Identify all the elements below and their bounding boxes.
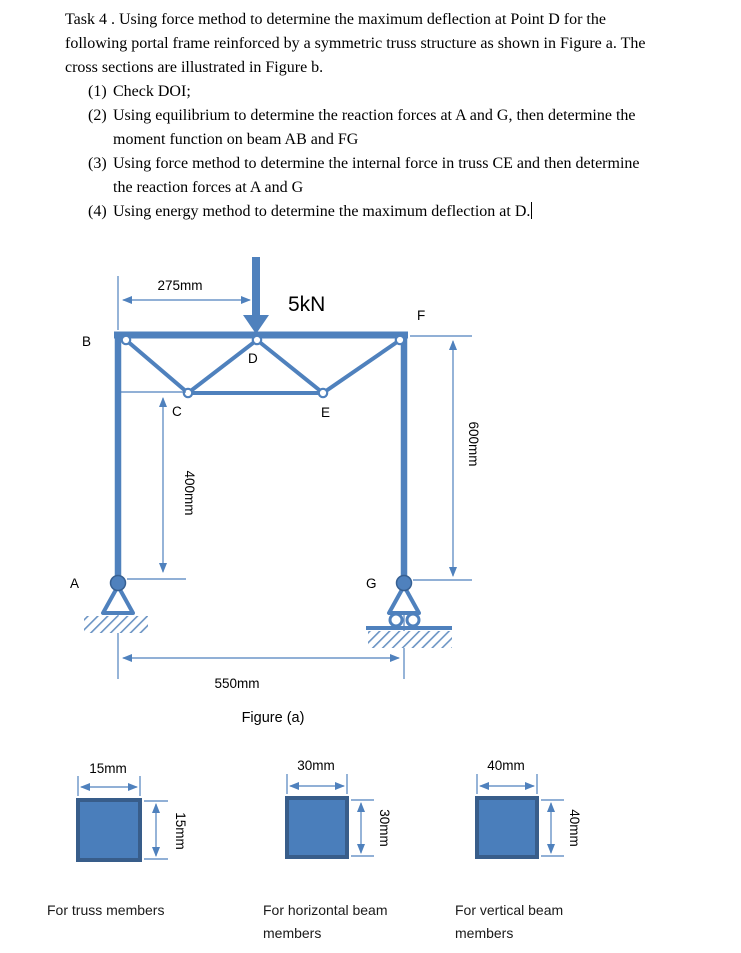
load-label: 5kN: [288, 293, 325, 316]
roller-wheel-left: [390, 614, 402, 626]
cross-section-vertical-beam: 40mm 40mm: [477, 758, 582, 857]
dimension-275: 275mm: [118, 276, 250, 330]
list-item-2-text-line-2: moment function on beam AB and FG: [113, 128, 708, 152]
truss-members: [126, 340, 400, 393]
task-line-1: Task 4 . Using force method to determine…: [65, 8, 715, 32]
truss-member-b-c: [126, 340, 188, 393]
node-label-a: A: [70, 576, 79, 591]
truss-member-c-d: [188, 340, 257, 393]
roller-support-g: [366, 576, 452, 649]
node-label-b: B: [82, 334, 91, 349]
cross-section-horizontal-beam: 30mm 30mm: [287, 758, 392, 857]
figure-a-caption: Figure (a): [242, 710, 305, 726]
text-cursor: [531, 202, 532, 219]
section-3-square: [477, 798, 537, 857]
figure-b-cross-sections-diagram: 15mm 15mm 30mm 30mm 40mm 40mm: [40, 752, 600, 870]
truss-member-d-e: [257, 340, 323, 393]
truss-member-e-f: [323, 340, 400, 393]
ground-hatch-g: [368, 631, 452, 648]
joint-c: [184, 389, 192, 397]
section-1-caption: For truss members: [47, 899, 164, 922]
section-1-width-label: 15mm: [89, 761, 127, 776]
list-item-1-number: (1): [88, 80, 107, 104]
cross-section-truss: 15mm 15mm: [78, 761, 188, 860]
list-item-2-text-line-1: Using equilibrium to determine the react…: [113, 104, 708, 128]
section-2-height-label: 30mm: [377, 809, 392, 847]
joint-near-b: [122, 336, 130, 344]
section-2-width-label: 30mm: [297, 758, 335, 773]
node-label-e: E: [321, 405, 330, 420]
list-item-3-text-line-2: the reaction forces at A and G: [113, 176, 708, 200]
ground-hatch-a: [84, 616, 148, 633]
load-arrowhead: [243, 315, 269, 334]
list-item-2-number: (2): [88, 104, 107, 128]
list-item-4-text: Using energy method to determine the max…: [113, 200, 708, 224]
dimension-550-extension-lines: [118, 588, 404, 679]
list-item-2: (2) Using equilibrium to determine the r…: [88, 104, 708, 152]
list-item-3-text-line-1: Using force method to determine the inte…: [113, 152, 708, 176]
section-3-width-label: 40mm: [487, 758, 525, 773]
node-label-f: F: [417, 308, 425, 323]
task-line-2: following portal frame reinforced by a s…: [65, 32, 715, 56]
task-line-3: cross sections are illustrated in Figure…: [65, 56, 715, 80]
load-arrow: [243, 257, 269, 334]
joint-e: [319, 389, 327, 397]
section-1-height-label: 15mm: [173, 812, 188, 850]
dimension-600: 600mm: [410, 336, 481, 580]
task-step-list: (1) Check DOI; (2) Using equilibrium to …: [88, 80, 708, 224]
list-item-3-number: (3): [88, 152, 107, 176]
roller-wheel-right: [407, 614, 419, 626]
section-1-square: [78, 800, 140, 860]
dimension-550-label: 550mm: [214, 676, 259, 691]
joint-d: [253, 336, 261, 344]
section-2-square: [287, 798, 347, 857]
list-item-4: (4) Using energy method to determine the…: [88, 200, 708, 224]
dimension-400-label: 400mm: [182, 470, 197, 515]
section-3-height-label: 40mm: [567, 809, 582, 847]
dimension-550: 550mm: [123, 658, 399, 691]
dimension-400: 400mm: [120, 392, 197, 579]
section-2-caption: For horizontal beam members: [263, 899, 388, 945]
list-item-1: (1) Check DOI;: [88, 80, 708, 104]
dimension-600-label: 600mm: [466, 421, 481, 466]
node-label-d: D: [248, 351, 258, 366]
node-label-g: G: [366, 576, 377, 591]
pin-support-hinge: [111, 576, 126, 591]
list-item-3: (3) Using force method to determine the …: [88, 152, 708, 200]
list-item-1-text: Check DOI;: [113, 80, 708, 104]
node-labels: B F D C E A G: [70, 308, 425, 591]
figure-a-portal-frame-diagram: 275mm 5kN 400mm 600mm: [40, 248, 500, 740]
node-label-c: C: [172, 404, 182, 419]
roller-support-hinge: [397, 576, 412, 591]
list-item-4-number: (4): [88, 200, 107, 224]
dimension-275-label: 275mm: [157, 278, 202, 293]
joint-near-f: [396, 336, 404, 344]
pin-support-a: [84, 576, 148, 634]
task-description: Task 4 . Using force method to determine…: [65, 8, 715, 80]
section-3-caption: For vertical beam members: [455, 899, 563, 945]
